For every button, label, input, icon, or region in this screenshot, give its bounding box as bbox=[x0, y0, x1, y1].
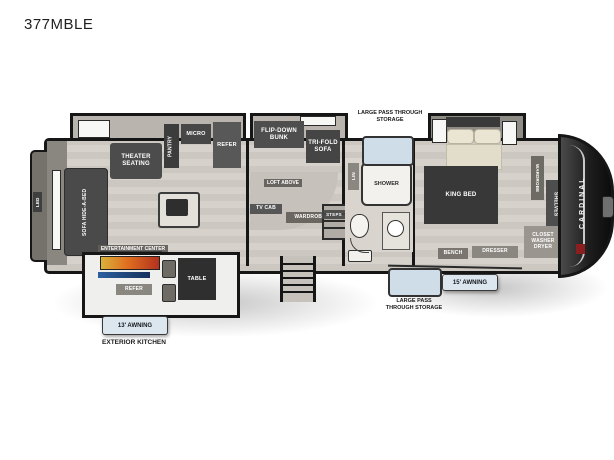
theater-seating: THEATER SEATING bbox=[110, 143, 162, 179]
exterior-kitchen-label: EXTERIOR KITCHEN bbox=[92, 339, 176, 347]
closet-washer-dryer: CLOSET WASHER DRYER bbox=[524, 226, 562, 258]
brand-logo: CARDINAL bbox=[577, 160, 589, 246]
bedroom-wardrobe: WARDROBE bbox=[531, 156, 544, 200]
exterior-table: TABLE bbox=[178, 258, 216, 300]
awning-13-label: 13' AWNING bbox=[102, 316, 168, 335]
floorplan-page: 377MBLE LED THEATER SEATING PANTRY MICRO… bbox=[0, 0, 614, 460]
ext-griddle bbox=[98, 272, 150, 278]
storage-top-door bbox=[362, 136, 414, 166]
king-bed: KING BED bbox=[424, 166, 498, 224]
microwave: MICRO bbox=[181, 124, 211, 144]
chair-top bbox=[162, 260, 176, 278]
shower: SHOWER bbox=[361, 162, 412, 206]
loft-above-label: LOFT ABOVE bbox=[252, 170, 314, 191]
linen-closet: LIN bbox=[348, 163, 359, 190]
pillow-left bbox=[447, 129, 474, 144]
brand-badge bbox=[576, 244, 585, 254]
tv-cabinet: TV CAB bbox=[250, 204, 282, 214]
storage-bottom-door bbox=[388, 268, 442, 297]
hitch-pin bbox=[602, 196, 614, 218]
pillow-right bbox=[474, 129, 501, 144]
tri-fold-sofa: TRI-FOLD SOFA bbox=[306, 130, 340, 163]
bedroom-window-right bbox=[502, 121, 517, 145]
steps-label: STEPS bbox=[322, 210, 346, 219]
storage-top-label: LARGE PASS THROUGH STORAGE bbox=[350, 110, 430, 124]
chair-bottom bbox=[162, 284, 176, 302]
living-slide-window bbox=[78, 120, 110, 138]
awning-15-label: 15' AWNING bbox=[442, 274, 498, 291]
flip-down-bunk: FLIP-DOWN BUNK bbox=[254, 121, 304, 148]
refrigerator: REFER bbox=[213, 122, 241, 168]
shower-label: SHOWER bbox=[374, 181, 399, 187]
rear-window bbox=[52, 170, 61, 250]
headboard bbox=[446, 117, 500, 127]
bunk-slide-window bbox=[300, 116, 336, 126]
storage-bottom-label: LARGE PASS THROUGH STORAGE bbox=[384, 298, 444, 312]
toilet-icon bbox=[350, 214, 369, 238]
wall-living-bunk bbox=[246, 140, 249, 266]
dresser: DRESSER bbox=[472, 246, 518, 258]
ext-cooktop-flame-icon bbox=[100, 256, 160, 270]
exterior-refrigerator: REFER bbox=[116, 284, 152, 295]
bath-sink-icon bbox=[387, 220, 404, 237]
page-title: 377MBLE bbox=[24, 16, 93, 33]
entry-steps bbox=[280, 256, 316, 302]
bench: BENCH bbox=[438, 248, 468, 259]
rear-tv-label: LED bbox=[33, 192, 42, 212]
pantry-cabinet: PANTRY bbox=[164, 124, 179, 168]
sink-icon bbox=[166, 199, 188, 216]
bedroom-window-left bbox=[432, 119, 447, 143]
